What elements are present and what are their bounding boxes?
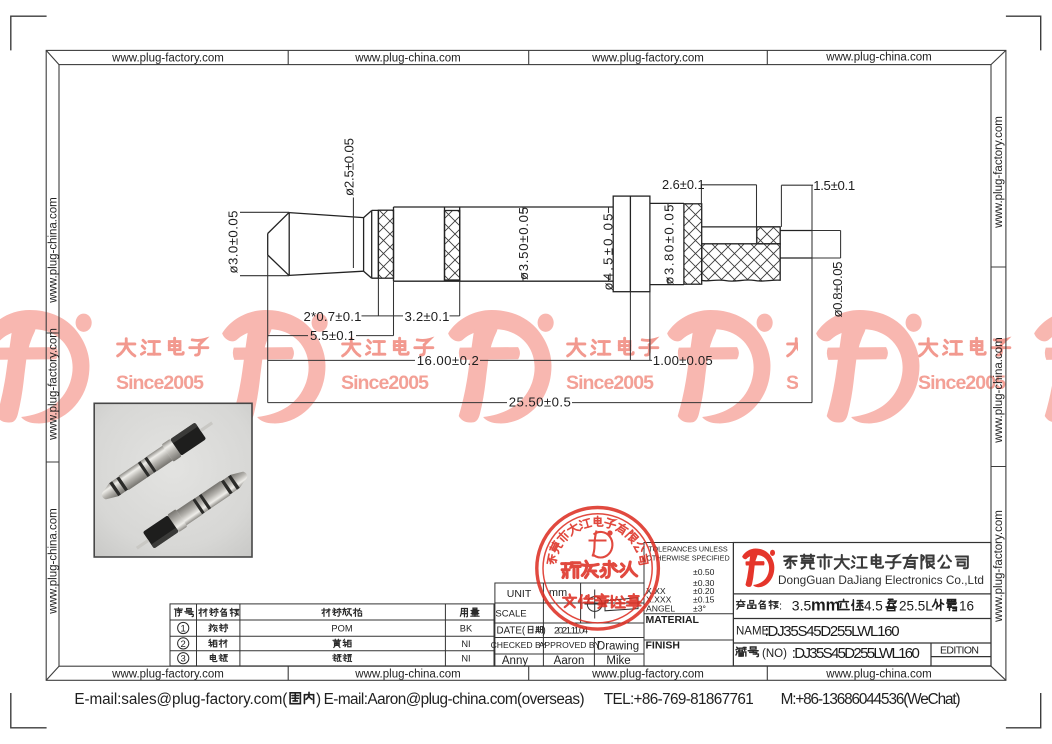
svg-text:M:+86-13686044536(WeChat): M:+86-13686044536(WeChat) bbox=[781, 691, 961, 708]
svg-text:Aaron: Aaron bbox=[554, 655, 585, 667]
svg-text:3.2±0.1: 3.2±0.1 bbox=[405, 309, 450, 324]
svg-text:16: 16 bbox=[959, 599, 974, 614]
svg-text:1.5±0.1: 1.5±0.1 bbox=[813, 178, 855, 193]
svg-text:DongGuan DaJiang Electronics C: DongGuan DaJiang Electronics Co.,Ltd bbox=[778, 573, 984, 587]
svg-text:www.plug-china.com: www.plug-china.com bbox=[48, 197, 60, 303]
svg-text:EDITION: EDITION bbox=[940, 645, 979, 657]
svg-text:POM: POM bbox=[331, 624, 352, 634]
svg-text:ø4.5±0.05: ø4.5±0.05 bbox=[601, 214, 616, 291]
svg-text:E-mail:Aaron@plug-china.com(ov: E-mail:Aaron@plug-china.com(overseas) bbox=[324, 691, 585, 708]
svg-text:DATE(: DATE( bbox=[497, 625, 526, 636]
svg-text:4.5: 4.5 bbox=[864, 599, 883, 614]
svg-text:Anny: Anny bbox=[502, 655, 528, 667]
svg-text:www.plug-factory.com: www.plug-factory.com bbox=[591, 53, 704, 65]
svg-text:3.5: 3.5 bbox=[792, 598, 812, 614]
svg-text:UNIT: UNIT bbox=[507, 588, 532, 600]
svg-text:www.plug-china.com: www.plug-china.com bbox=[825, 52, 931, 64]
svg-text:Since2005: Since2005 bbox=[341, 372, 429, 394]
svg-text:www.plug-china.com: www.plug-china.com bbox=[48, 508, 60, 614]
svg-text:www.plug-china.com: www.plug-china.com bbox=[993, 337, 1005, 443]
svg-text:NI: NI bbox=[461, 639, 470, 649]
svg-text:TEL:+86-769-81867761: TEL:+86-769-81867761 bbox=[604, 691, 754, 708]
svg-text:www.plug-factory.com: www.plug-factory.com bbox=[111, 53, 224, 65]
svg-text:2: 2 bbox=[181, 639, 186, 650]
svg-text:www.plug-china.com: www.plug-china.com bbox=[354, 53, 460, 65]
svg-text:(NO): (NO) bbox=[762, 648, 787, 660]
svg-text:Mike: Mike bbox=[606, 655, 630, 667]
svg-text:E-mail:sales@plug-factory.com(: E-mail:sales@plug-factory.com( bbox=[74, 691, 287, 708]
svg-text:BK: BK bbox=[460, 624, 473, 634]
svg-text:www.plug-factory.com: www.plug-factory.com bbox=[48, 328, 60, 441]
svg-text:2.6±0.1: 2.6±0.1 bbox=[662, 177, 705, 192]
svg-text:ANGEL: ANGEL bbox=[646, 603, 675, 613]
svg-text:16.00±0.2: 16.00±0.2 bbox=[417, 353, 479, 368]
svg-text:MATERIAL: MATERIAL bbox=[646, 614, 700, 626]
svg-text:www.plug-factory.com: www.plug-factory.com bbox=[591, 668, 704, 680]
svg-text::DJ35S45D255LWL160: :DJ35S45D255LWL160 bbox=[765, 623, 900, 640]
svg-text:5.5±0.1: 5.5±0.1 bbox=[310, 328, 355, 343]
svg-text:TOLERANCES UNLESS: TOLERANCES UNLESS bbox=[648, 545, 728, 554]
svg-text:ø3.0±0.05: ø3.0±0.05 bbox=[226, 211, 241, 274]
svg-text:mm: mm bbox=[811, 597, 840, 615]
svg-text:NI: NI bbox=[461, 654, 470, 664]
svg-text::DJ35S45D255LWL160: :DJ35S45D255LWL160 bbox=[792, 645, 920, 662]
svg-text:www.plug-factory.com: www.plug-factory.com bbox=[993, 510, 1005, 623]
svg-text:): ) bbox=[316, 691, 321, 708]
svg-text:APPROVED BY: APPROVED BY bbox=[539, 640, 601, 650]
svg-text:±3°: ±3° bbox=[693, 603, 706, 613]
svg-text:SCALE: SCALE bbox=[495, 609, 526, 620]
svg-text:ø3.50±0.05: ø3.50±0.05 bbox=[516, 207, 531, 280]
svg-text:1: 1 bbox=[181, 623, 186, 634]
svg-text:Drawing: Drawing bbox=[597, 641, 639, 653]
svg-text:2*0.7±0.1: 2*0.7±0.1 bbox=[304, 309, 362, 324]
svg-text:25.50±0.5: 25.50±0.5 bbox=[509, 395, 571, 410]
svg-text:FINISH: FINISH bbox=[646, 640, 680, 652]
svg-text:ø0.8±0.05: ø0.8±0.05 bbox=[830, 262, 845, 318]
svg-text:www.plug-china.com: www.plug-china.com bbox=[354, 668, 460, 680]
svg-text:3: 3 bbox=[181, 654, 186, 665]
svg-text:1.00±0.05: 1.00±0.05 bbox=[653, 353, 713, 368]
svg-text:www.plug-factory.com: www.plug-factory.com bbox=[993, 116, 1005, 229]
svg-text:±0.50: ±0.50 bbox=[693, 567, 715, 577]
svg-text:Since2005: Since2005 bbox=[566, 372, 654, 394]
svg-text:www.plug-factory.com: www.plug-factory.com bbox=[111, 668, 224, 680]
svg-text:Since2005: Since2005 bbox=[116, 372, 204, 394]
svg-text:25.5L: 25.5L bbox=[899, 599, 933, 614]
svg-text:): ) bbox=[543, 625, 546, 636]
svg-text::: : bbox=[779, 601, 782, 613]
svg-text:ø2.5±0.05: ø2.5±0.05 bbox=[341, 138, 356, 196]
svg-text:www.plug-china.com: www.plug-china.com bbox=[825, 668, 931, 680]
